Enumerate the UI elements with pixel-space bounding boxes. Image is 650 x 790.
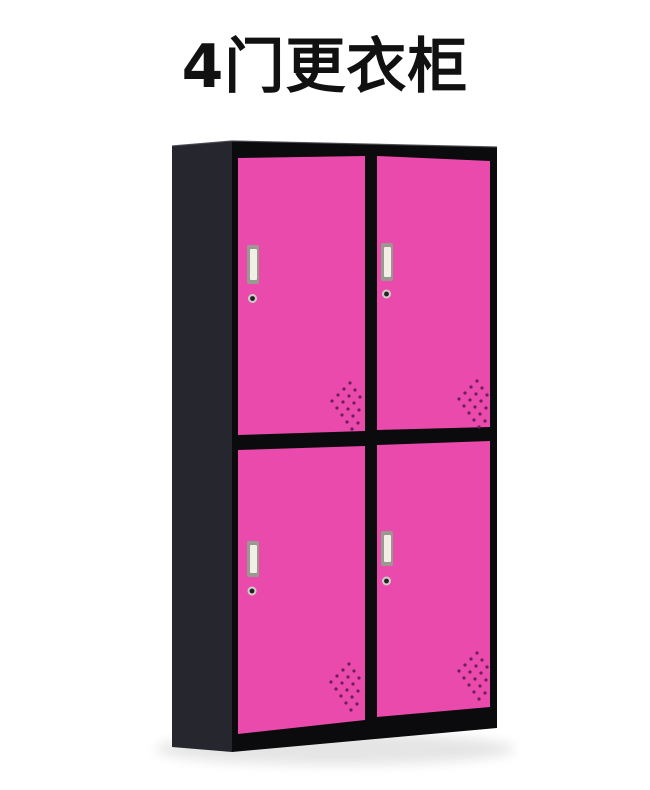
- keyhole-center: [384, 292, 389, 297]
- handle-recess: [250, 545, 257, 573]
- handle-recess: [384, 535, 391, 562]
- door-bottom-right: [377, 441, 490, 717]
- door-top-right: [377, 156, 490, 430]
- door-top-left: [238, 156, 365, 435]
- keyhole-center: [384, 579, 389, 584]
- door-bottom-left: [238, 446, 365, 734]
- product-image: 4门更衣柜: [0, 0, 650, 790]
- keyhole-lock-icon: [248, 294, 257, 303]
- keyhole-lock-icon: [382, 290, 391, 299]
- keyhole-lock-icon: [248, 587, 257, 596]
- door-handle: [247, 541, 259, 577]
- door-handle: [381, 243, 393, 281]
- door-panel: [238, 156, 365, 435]
- keyhole-center: [250, 296, 255, 301]
- door-handle: [381, 531, 393, 566]
- door-handle: [247, 245, 259, 284]
- cabinet-side-panel: [172, 141, 232, 752]
- keyhole-center: [250, 589, 255, 594]
- door-panel: [377, 156, 490, 430]
- handle-recess: [384, 247, 391, 277]
- handle-recess: [250, 249, 257, 280]
- door-panel: [377, 441, 490, 717]
- keyhole-lock-icon: [382, 577, 391, 586]
- cabinet-illustration: [0, 0, 650, 790]
